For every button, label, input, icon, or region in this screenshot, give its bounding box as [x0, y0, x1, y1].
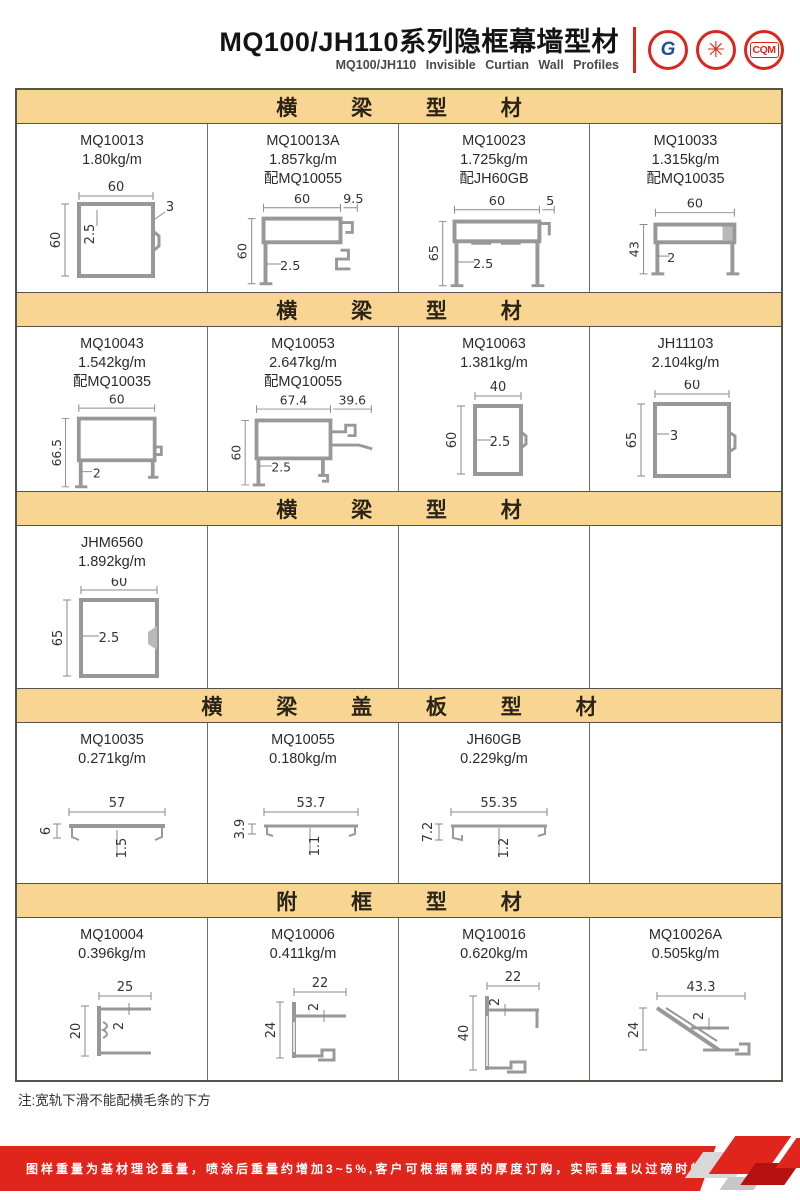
profile-weight: 0.396kg/m: [17, 945, 207, 964]
profile-match: 配MQ10055: [208, 170, 398, 189]
profile-drawing-mq10013: 60 60 2.5 3: [17, 179, 207, 283]
profile-drawing-jhm6560: 60 65 2.5: [17, 578, 207, 682]
profile-weight: 0.505kg/m: [590, 945, 781, 964]
profile-code: MQ10026A: [590, 926, 781, 945]
profile-match: 配JH60GB: [399, 170, 589, 189]
header-divider: [633, 27, 636, 73]
profile-weight: 1.857kg/m: [208, 151, 398, 170]
profile-drawing-mq10006: 22 24 2: [208, 970, 398, 1074]
empty-cell: [399, 526, 590, 688]
svg-text:2: 2: [112, 1022, 127, 1030]
profile-label: JH11103 2.104kg/m: [590, 335, 781, 373]
profile-cell-mq10063: MQ10063 1.381kg/m 40 60 2.5: [399, 327, 590, 491]
profile-cell-mq10006: MQ10006 0.411kg/m 22 24 2: [208, 918, 399, 1080]
profile-match: 配MQ10055: [208, 373, 398, 392]
page-subtitle: MQ100/JH110 Invisible Curtian Wall Profi…: [219, 58, 619, 72]
svg-text:2.5: 2.5: [280, 259, 300, 274]
svg-text:65: 65: [427, 245, 442, 261]
svg-text:1.5: 1.5: [115, 838, 130, 859]
profile-label: MQ10006 0.411kg/m: [208, 926, 398, 964]
svg-text:2: 2: [667, 251, 675, 266]
profile-label: MQ10043 1.542kg/m 配MQ10035: [17, 335, 207, 392]
svg-text:2.5: 2.5: [99, 631, 120, 646]
svg-text:5: 5: [546, 194, 554, 209]
profile-cell-jh11103: JH11103 2.104kg/m 60 65 3: [590, 327, 781, 491]
svg-text:2: 2: [488, 998, 503, 1006]
svg-text:55.35: 55.35: [480, 796, 517, 811]
profile-code: JH11103: [590, 335, 781, 354]
profile-cell-mq10035: MQ10035 0.271kg/m 57 6 1.5: [17, 723, 208, 883]
gb-logo-glyph: G: [661, 39, 676, 61]
profile-code: MQ10004: [17, 926, 207, 945]
svg-text:2.5: 2.5: [83, 224, 98, 245]
svg-text:60: 60: [489, 194, 505, 209]
footer-disclaimer: 图样重量为基材理论重量，喷涂后重量约增加3~5%,客户可根据需要的厚度订购，实际…: [26, 1160, 780, 1177]
svg-text:6: 6: [39, 827, 54, 835]
svg-text:60: 60: [445, 432, 460, 449]
profile-drawing-mq10023: 60 5 65 2.5: [399, 189, 589, 292]
svg-text:2: 2: [692, 1012, 707, 1020]
profile-cell-mq10013a: MQ10013A 1.857kg/m 配MQ10055 60 9.5 60: [208, 124, 399, 292]
profile-weight: 1.315kg/m: [590, 151, 781, 170]
profile-weight: 1.725kg/m: [399, 151, 589, 170]
svg-text:43.3: 43.3: [686, 980, 715, 995]
profile-match: 配MQ10035: [590, 170, 781, 189]
svg-text:3: 3: [669, 429, 677, 444]
profile-cell-mq10026a: MQ10026A 0.505kg/m 43.3 24 2: [590, 918, 781, 1080]
profile-row-5: MQ10004 0.396kg/m 25 20 2 MQ10006: [17, 918, 781, 1080]
profile-row-3: JHM6560 1.892kg/m 60 65 2.5: [17, 526, 781, 688]
svg-text:2.5: 2.5: [473, 257, 493, 272]
cqm-logo-glyph: CQM: [750, 42, 779, 58]
profile-label: MQ10053 2.647kg/m 配MQ10055: [208, 335, 398, 392]
profile-weight: 0.180kg/m: [208, 750, 398, 769]
svg-text:22: 22: [505, 970, 522, 985]
svg-text:7.2: 7.2: [421, 822, 436, 843]
empty-cell: [208, 526, 399, 688]
svg-text:67.4: 67.4: [280, 394, 308, 408]
section-band-beam-3: 横 梁 型 材: [17, 491, 781, 526]
section-band-frame: 附 框 型 材: [17, 883, 781, 918]
svg-text:2: 2: [307, 1003, 322, 1011]
profile-cell-jh60gb: JH60GB 0.229kg/m 55.35 7.2 1.2: [399, 723, 590, 883]
profile-code: MQ10013: [17, 132, 207, 151]
profile-cell-mq10053: MQ10053 2.647kg/m 配MQ10055 67.4 39.6 60 …: [208, 327, 399, 491]
profile-weight: 2.647kg/m: [208, 354, 398, 373]
svg-text:60: 60: [49, 232, 64, 249]
title-block: MQ100/JH110系列隐框幕墙型材 MQ100/JH110 Invisibl…: [219, 28, 619, 72]
svg-text:25: 25: [117, 980, 134, 995]
profile-label: MQ10055 0.180kg/m: [208, 731, 398, 769]
catalog-page: MQ100/JH110系列隐框幕墙型材 MQ100/JH110 Invisibl…: [0, 0, 800, 1200]
profile-code: MQ10035: [17, 731, 207, 750]
empty-cell: [590, 723, 781, 883]
profile-cell-mq10016: MQ10016 0.620kg/m 22 40 2: [399, 918, 590, 1080]
profile-weight: 0.620kg/m: [399, 945, 589, 964]
profile-cell-mq10023: MQ10023 1.725kg/m 配JH60GB 60 5 65: [399, 124, 590, 292]
profile-code: MQ10013A: [208, 132, 398, 151]
svg-text:65: 65: [625, 432, 640, 449]
profile-weight: 1.542kg/m: [17, 354, 207, 373]
svg-text:3.9: 3.9: [233, 819, 248, 840]
profile-code: MQ10006: [208, 926, 398, 945]
svg-text:3: 3: [166, 200, 174, 215]
section-band-cover: 横 梁 盖 板 型 材: [17, 688, 781, 723]
profile-match: 配MQ10035: [17, 373, 207, 392]
page-title: MQ100/JH110系列隐框幕墙型材: [219, 28, 619, 56]
svg-text:20: 20: [69, 1023, 84, 1040]
cqm-certification-icon: CQM: [744, 30, 784, 70]
svg-text:40: 40: [490, 380, 507, 395]
svg-text:2: 2: [93, 467, 101, 481]
svg-text:60: 60: [111, 578, 128, 590]
profile-drawing-mq10026a: 43.3 24 2: [591, 970, 781, 1074]
svg-text:40: 40: [457, 1025, 472, 1042]
profile-cell-mq10013: MQ10013 1.80kg/m 60 60 2.5 3: [17, 124, 208, 292]
profile-code: JHM6560: [17, 534, 207, 553]
section-band-beam-1: 横 梁 型 材: [17, 90, 781, 124]
svg-text:66.5: 66.5: [50, 439, 64, 466]
svg-text:65: 65: [51, 630, 66, 647]
profile-code: MQ10016: [399, 926, 589, 945]
profile-code: JH60GB: [399, 731, 589, 750]
profile-drawing-mq10053: 67.4 39.6 60 2.5: [208, 392, 398, 491]
profile-weight: 0.411kg/m: [208, 945, 398, 964]
profile-weight: 1.892kg/m: [17, 553, 207, 572]
profile-drawing-mq10016: 22 40 2: [399, 970, 589, 1074]
svg-text:2.5: 2.5: [490, 435, 511, 450]
profile-weight: 0.229kg/m: [399, 750, 589, 769]
svg-text:53.7: 53.7: [297, 796, 326, 811]
profile-row-4: MQ10035 0.271kg/m 57 6 1.5 MQ10055: [17, 723, 781, 883]
profile-label: JHM6560 1.892kg/m: [17, 534, 207, 572]
seal-logo-glyph: ✳: [707, 39, 725, 61]
profile-drawing-mq10063: 40 60 2.5: [399, 380, 589, 484]
profile-label: MQ10023 1.725kg/m 配JH60GB: [399, 132, 589, 189]
table-note: 注:宽轨下滑不能配横毛条的下方: [18, 1089, 800, 1109]
svg-text:57: 57: [109, 796, 126, 811]
profile-code: MQ10063: [399, 335, 589, 354]
profile-cell-mq10004: MQ10004 0.396kg/m 25 20 2: [17, 918, 208, 1080]
profile-code: MQ10043: [17, 335, 207, 354]
svg-text:60: 60: [229, 445, 243, 461]
section-band-beam-2: 横 梁 型 材: [17, 292, 781, 327]
quality-seal-icon: ✳: [696, 30, 736, 70]
profile-label: MQ10013 1.80kg/m: [17, 132, 207, 170]
svg-text:60: 60: [686, 197, 702, 212]
profile-row-1: MQ10013 1.80kg/m 60 60 2.5 3: [17, 124, 781, 292]
svg-text:9.5: 9.5: [343, 192, 363, 207]
svg-text:1.2: 1.2: [497, 838, 512, 859]
profile-drawing-mq10035: 57 6 1.5: [17, 774, 207, 878]
profile-drawing-mq10055: 53.7 3.9 1.1: [208, 774, 398, 878]
svg-text:39.6: 39.6: [339, 394, 367, 408]
profile-label: MQ10035 0.271kg/m: [17, 731, 207, 769]
svg-text:60: 60: [108, 180, 125, 195]
profile-code: MQ10053: [208, 335, 398, 354]
profile-cell-mq10055: MQ10055 0.180kg/m 53.7 3.9 1.1: [208, 723, 399, 883]
profile-code: MQ10033: [590, 132, 781, 151]
profile-code: MQ10023: [399, 132, 589, 151]
profile-cell-mq10043: MQ10043 1.542kg/m 配MQ10035 60 66.5 2: [17, 327, 208, 491]
profile-label: MQ10026A 0.505kg/m: [590, 926, 781, 964]
profile-drawing-mq10033: 60 43 2: [591, 189, 781, 292]
profile-label: MQ10016 0.620kg/m: [399, 926, 589, 964]
profile-weight: 2.104kg/m: [590, 354, 781, 373]
profile-weight: 1.381kg/m: [399, 354, 589, 373]
profile-label: MQ10033 1.315kg/m 配MQ10035: [590, 132, 781, 189]
profile-cell-mq10033: MQ10033 1.315kg/m 配MQ10035 60 43 2: [590, 124, 781, 292]
profile-drawing-jh11103: 60 65 3: [591, 380, 781, 484]
profile-label: JH60GB 0.229kg/m: [399, 731, 589, 769]
profile-drawing-mq10013a: 60 9.5 60 2.5: [208, 189, 398, 292]
page-header: MQ100/JH110系列隐框幕墙型材 MQ100/JH110 Invisibl…: [0, 0, 800, 76]
svg-text:2.5: 2.5: [271, 461, 291, 475]
profile-label: MQ10004 0.396kg/m: [17, 926, 207, 964]
profile-drawing-mq10004: 25 20 2: [17, 970, 207, 1074]
svg-text:60: 60: [109, 393, 125, 407]
svg-text:24: 24: [264, 1022, 279, 1039]
svg-text:60: 60: [683, 380, 700, 393]
profile-label: MQ10013A 1.857kg/m 配MQ10055: [208, 132, 398, 189]
profile-row-2: MQ10043 1.542kg/m 配MQ10035 60 66.5 2: [17, 327, 781, 491]
svg-text:24: 24: [627, 1022, 642, 1039]
profiles-table: 横 梁 型 材 MQ10013 1.80kg/m 60 60 2.5: [15, 88, 783, 1082]
svg-text:22: 22: [312, 976, 329, 991]
profile-cell-jhm6560: JHM6560 1.892kg/m 60 65 2.5: [17, 526, 208, 688]
svg-text:60: 60: [236, 243, 251, 259]
svg-text:60: 60: [294, 192, 310, 207]
footer-bar: 图样重量为基材理论重量，喷涂后重量约增加3~5%,客户可根据需要的厚度订购，实际…: [0, 1146, 716, 1191]
profile-code: MQ10055: [208, 731, 398, 750]
profile-drawing-jh60gb: 55.35 7.2 1.2: [399, 774, 589, 878]
profile-drawing-mq10043: 60 66.5 2: [17, 392, 207, 491]
certification-logos: G ✳ CQM: [648, 30, 784, 70]
svg-text:43: 43: [627, 241, 642, 257]
svg-text:1.1: 1.1: [308, 836, 323, 857]
profile-label: MQ10063 1.381kg/m: [399, 335, 589, 373]
gb-certification-icon: G: [648, 30, 688, 70]
profile-weight: 0.271kg/m: [17, 750, 207, 769]
empty-cell: [590, 526, 781, 688]
profile-weight: 1.80kg/m: [17, 151, 207, 170]
